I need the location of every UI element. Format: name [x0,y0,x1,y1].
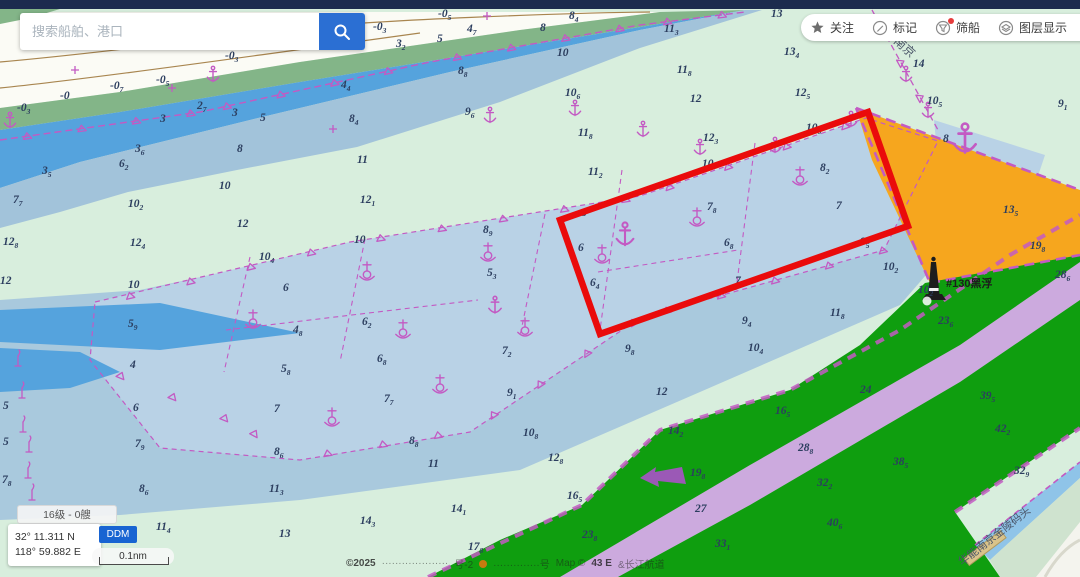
depth-sounding: 8 [540,22,546,34]
depth-sounding: 6 [578,242,584,254]
mark-label: 标记 [893,19,917,36]
zoom-level-badge: 16级 - 0艘 [17,505,117,524]
depth-sounding: 11 [357,154,368,166]
depth-sounding: 10 [557,47,569,59]
depth-sounding: 8 [943,133,949,145]
nautical-chart-map[interactable]: -0-07-05-03-03-05-0332735448436623577102… [0,0,1080,577]
attribution-segment: Map © [556,558,586,569]
longitude-value: 118° 59.882 E [15,545,101,560]
search-button[interactable] [319,13,365,50]
layers-label: 图层显示 [1019,19,1067,36]
depth-sounding: 14 [913,58,925,70]
search-input[interactable] [20,13,319,50]
depth-sounding: 3 [159,113,166,125]
layers-button[interactable]: 图层显示 [989,14,1076,41]
depth-sounding: 3 [231,107,238,119]
buoy-label: #130黑浮 [946,276,992,290]
depth-sounding: -0 [60,90,70,102]
filter-ships-label: 筛船 [956,19,980,36]
latitude-value: 32° 11.311 N [15,530,101,545]
map-attribution: ©2025····················号-2············… [346,556,665,571]
map-toolbar: 关注 标记 筛船 图层显示 [801,14,1080,41]
depth-sounding: 11 [428,458,439,470]
search-bar [20,13,365,50]
depth-sounding: 12 [0,275,12,287]
depth-sounding: 8 [237,143,243,155]
depth-sounding: 13 [279,528,291,540]
depth-sounding: 10 [219,180,231,192]
search-icon [333,23,351,41]
depth-sounding: 12 [656,386,668,398]
chart-app: -0-07-05-03-03-05-0332735448436623577102… [0,0,1080,577]
layers-icon [998,20,1014,36]
attribution-segment: ···················· [382,558,449,569]
attribution-segment: ©2025 [346,558,376,569]
follow-button[interactable]: 关注 [801,14,863,41]
scale-bracket [99,557,169,565]
depth-sounding: 10 [354,234,366,246]
depth-sounding: 5 [437,33,443,45]
follow-label: 关注 [830,19,854,36]
attribution-segment: &长江航道 [618,556,665,571]
fleet-button[interactable] [1076,14,1080,41]
depth-sounding: 6 [133,402,139,414]
depth-sounding: 6 [283,282,289,294]
attribution-segment: 43 E [591,558,612,569]
star-icon [810,20,825,35]
depth-sounding: 24 [859,384,872,396]
depth-sounding: 4 [129,359,136,371]
depth-sounding: 5 [3,400,9,412]
depth-sounding: 5 [3,436,9,448]
filter-ships-button[interactable]: 筛船 [926,14,989,41]
mark-button[interactable]: 标记 [863,14,926,41]
security-badge-icon [479,560,487,568]
depth-sounding: 12 [690,93,702,105]
depth-sounding: 5 [260,112,266,124]
depth-sounding: 27 [694,503,708,515]
attribution-segment: 号-2 [454,556,473,571]
depth-sounding: 10 [128,279,140,291]
attribution-segment: ··············号 [493,556,550,571]
pencil-icon [872,20,888,36]
coordinates-panel: 32° 11.311 N 118° 59.882 E [8,524,101,566]
coordinate-format-button[interactable]: DDM [99,526,137,543]
depth-sounding: 12 [237,218,249,230]
depth-sounding: 13 [771,8,783,20]
filter-notification-dot [948,18,954,24]
